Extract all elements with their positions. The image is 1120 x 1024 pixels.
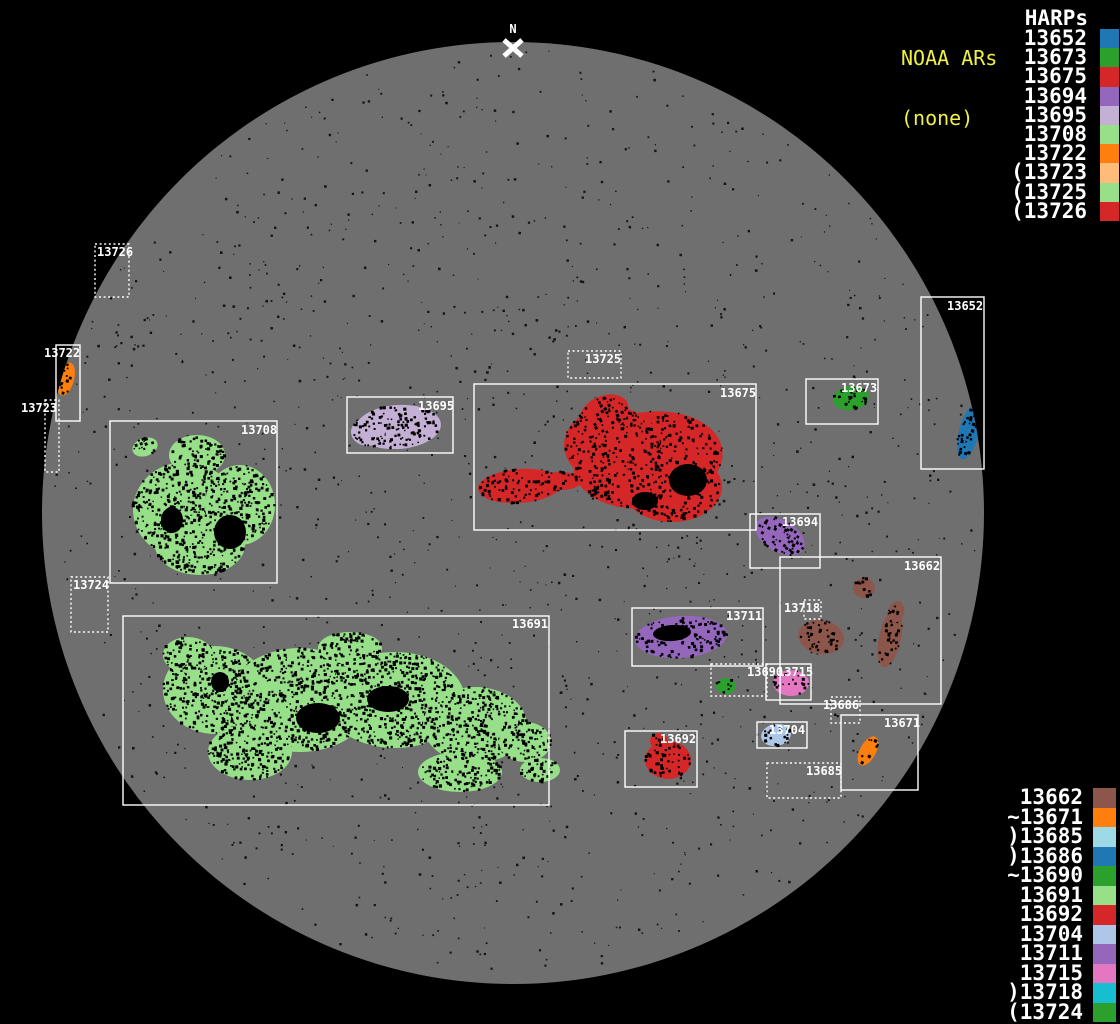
harp-box-label-13715: 13715 <box>777 665 813 679</box>
harp-color-swatch <box>1093 983 1116 1003</box>
harp-color-swatch <box>1100 163 1119 182</box>
harp-color-swatch <box>1100 106 1119 125</box>
harp-color-swatch <box>1100 183 1119 202</box>
north-label: N <box>509 22 516 36</box>
north-marker: N <box>504 22 522 56</box>
harp-color-swatch <box>1100 29 1119 48</box>
harp-box-label-13695: 13695 <box>418 399 454 413</box>
noaa-ars-header: NOAA ARs <box>901 48 997 68</box>
harp-legend-item: (13724 <box>1007 1003 1120 1023</box>
harp-box-label-13726: 13726 <box>97 245 133 259</box>
harp-legend-label: (13724 <box>1007 1003 1083 1022</box>
harp-color-swatch <box>1093 808 1116 828</box>
harp-box-label-13723: 13723 <box>21 401 57 415</box>
harp-box-label-13724: 13724 <box>73 578 109 592</box>
harp-box-label-13718: 13718 <box>784 601 820 615</box>
harp-color-swatch <box>1093 886 1116 906</box>
harp-box-label-13694: 13694 <box>782 515 818 529</box>
harp-box-label-13685: 13685 <box>806 764 842 778</box>
harp-box-label-13652: 13652 <box>947 299 983 313</box>
harp-color-swatch <box>1100 48 1119 67</box>
harp-box-label-13673: 13673 <box>841 381 877 395</box>
harp-legend-label: (13726 <box>1011 202 1087 221</box>
harp-color-swatch <box>1100 87 1119 106</box>
harp-color-swatch <box>1100 202 1119 221</box>
harp-color-swatch <box>1093 905 1116 925</box>
harp-box-label-13691: 13691 <box>512 617 548 631</box>
solar-harp-plot: 1372613722137231370813695137251367513673… <box>0 0 1120 1024</box>
harp-legend-item: (13726 <box>1011 202 1120 221</box>
harp-color-swatch <box>1093 788 1116 808</box>
harp-color-swatch <box>1093 847 1116 867</box>
footer-caption: HARPs: numbered boxes; active region col… <box>4 990 412 1015</box>
footer-line: NOAA ARs: crosses; numerical label shift… <box>4 1002 412 1014</box>
harp-box-label-13692: 13692 <box>660 732 696 746</box>
harp-box-label-13722: 13722 <box>44 346 80 360</box>
harp-color-swatch <box>1093 944 1116 964</box>
harp-box-label-13671: 13671 <box>884 716 920 730</box>
harp-box-label-13708: 13708 <box>241 423 277 437</box>
harp-color-swatch <box>1100 144 1119 163</box>
harp-box-label-13686: 13686 <box>823 698 859 712</box>
harp-color-swatch <box>1093 827 1116 847</box>
harp-color-swatch <box>1093 866 1116 886</box>
harp-color-swatch <box>1093 925 1116 945</box>
harp-box-label-13711: 13711 <box>726 609 762 623</box>
harp-color-swatch <box>1100 67 1119 86</box>
plot-time: 14:00 <box>8 158 309 177</box>
noaa-ars-block: NOAA ARs (none) <box>901 8 997 168</box>
harp-box-label-13704: 13704 <box>769 723 805 737</box>
noaa-ars-value: (none) <box>901 108 997 128</box>
plot-title: SDO/HMI Tracked AR (HARP) <box>8 44 309 63</box>
harp-box-label-13675: 13675 <box>720 386 756 400</box>
plot-title-block: SDO/HMI Tracked AR (HARP) 2025/08/28 14:… <box>8 6 309 215</box>
harp-box-label-13662: 13662 <box>904 559 940 573</box>
harp-color-swatch <box>1093 1003 1116 1023</box>
harp-color-swatch <box>1100 125 1119 144</box>
plot-date: 2025/08/28 <box>8 101 309 120</box>
harp-count: H = 22 <box>8 865 237 884</box>
harp-box-label-13725: 13725 <box>585 352 621 366</box>
harp-color-swatch <box>1093 964 1116 984</box>
